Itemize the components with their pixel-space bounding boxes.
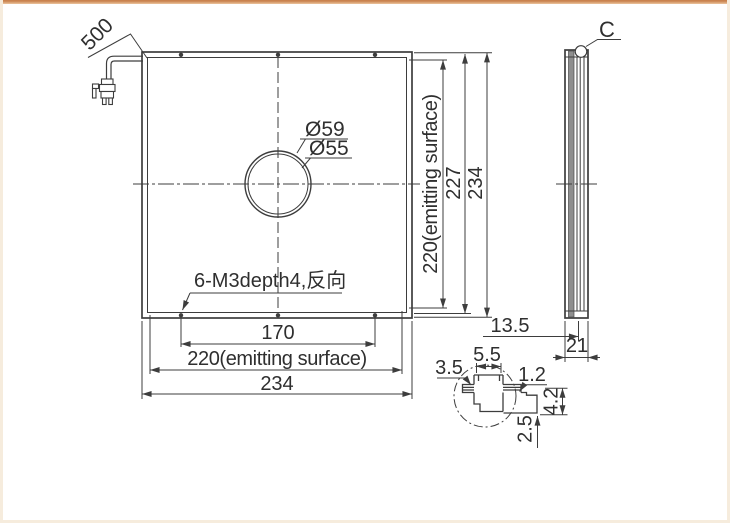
connector	[93, 79, 116, 105]
dim-220h-label: 220(emitting surface)	[420, 94, 442, 273]
dim-cable-500: 500	[77, 14, 147, 58]
cable-outer-line	[107, 56, 144, 79]
dim-5-5: 5.5	[473, 344, 501, 373]
dim-500-label: 500	[77, 14, 118, 55]
dim-5-5-label: 5.5	[473, 344, 501, 366]
dim-2-5-label: 2.5	[515, 415, 537, 443]
section-c-circle	[575, 46, 587, 58]
dim-1-2-label: 1.2	[518, 364, 546, 386]
dim-234w-label: 234	[260, 373, 293, 395]
dim-1-2: 1.2	[518, 364, 547, 392]
thread-note-leader	[183, 293, 191, 310]
thread-note-label: 6-M3depth4,反向	[194, 269, 346, 292]
dim-220w-label: 220(emitting surface)	[187, 348, 366, 370]
diameter-callouts: Ø59 Ø55	[297, 118, 352, 168]
technical-drawing: Ø59 Ø55 6-M3depth4,反向	[0, 0, 730, 523]
dim-21-label: 21	[566, 335, 588, 357]
cable-assembly	[93, 56, 144, 104]
drawing-page: Ø59 Ø55 6-M3depth4,反向	[0, 0, 730, 523]
section-c-label: C	[599, 17, 615, 42]
front-view: Ø59 Ø55 6-M3depth4,反向	[77, 14, 492, 399]
dim-4-2: 4.2	[540, 388, 568, 416]
dim-13-5: 13.5	[483, 315, 579, 342]
dim-170: 170	[181, 318, 375, 347]
dim-3-5-label: 3.5	[435, 357, 463, 379]
dim-170-label: 170	[261, 322, 294, 344]
section-c-callout: C	[575, 17, 621, 57]
dim-21: 21	[553, 321, 600, 362]
thread-note: 6-M3depth4,反向	[183, 269, 347, 310]
dim-227-label: 227	[443, 166, 465, 199]
cable-inner-line	[111, 61, 143, 79]
dim-4-2-label: 4.2	[541, 388, 563, 416]
dim-13-5-label: 13.5	[491, 315, 530, 337]
detail-view: 5.5 3.5 1.2 4.2 2.5	[435, 344, 567, 448]
detail-boundary-circle	[454, 365, 516, 427]
diameter-55-label: Ø55	[309, 137, 349, 160]
dim-2-5: 2.5	[515, 415, 538, 448]
dim-234h-label: 234	[465, 166, 487, 199]
dim-3-5: 3.5	[435, 357, 471, 385]
side-view: C 13.5 21	[483, 17, 621, 362]
